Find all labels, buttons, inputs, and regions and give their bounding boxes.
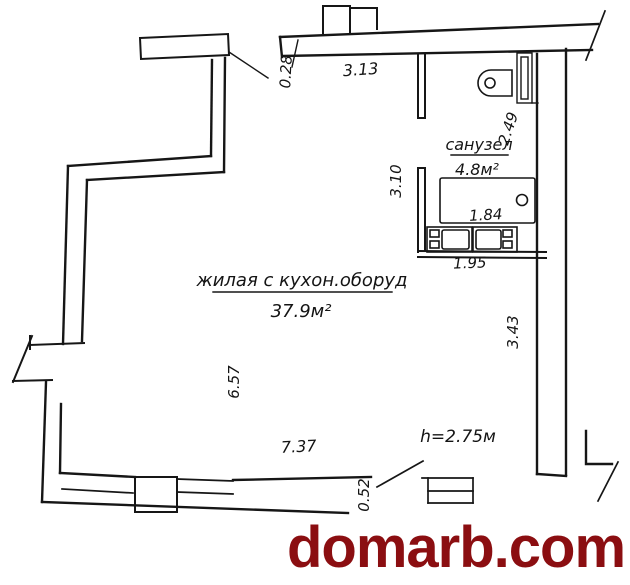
walls bbox=[42, 24, 598, 513]
dim-bathroom-right-wall: 2.49 bbox=[495, 110, 522, 147]
corner-wall-piece bbox=[586, 431, 612, 464]
room-bathroom-area: 4.8м² bbox=[455, 160, 500, 179]
ceiling-height-label: h=2.75м bbox=[420, 427, 496, 447]
dim-top-wall: 3.13 bbox=[342, 59, 379, 80]
stove-icons bbox=[427, 227, 517, 252]
room-living-name: жилая с кухон.оборуд bbox=[196, 270, 408, 291]
floor-plan-image: жилая с кухон.оборуд 37.9м² санузел 4.8м… bbox=[0, 0, 630, 585]
dim-bathtub-width: 1.84 bbox=[469, 205, 503, 225]
dim-top-offset: 0.28 bbox=[276, 55, 296, 89]
wall-break-marks bbox=[377, 11, 618, 501]
dim-kitchen-units-width: 1.95 bbox=[453, 253, 487, 272]
lintel-block bbox=[140, 34, 268, 78]
dim-left-wall: 6.57 bbox=[225, 365, 243, 399]
vent-shaft bbox=[323, 6, 377, 33]
dim-right-wall: 3.43 bbox=[504, 315, 522, 348]
wall-pilaster bbox=[13, 336, 84, 382]
dim-bottom-offset: 0.52 bbox=[355, 478, 373, 511]
floor-plan-drawing: жилая с кухон.оборуд 37.9м² санузел 4.8м… bbox=[0, 0, 630, 585]
toilet-icon bbox=[478, 70, 512, 96]
site-watermark: domarb.com bbox=[287, 515, 625, 580]
dim-bottom-wall: 7.37 bbox=[280, 436, 317, 457]
dim-bathroom-left-wall: 3.10 bbox=[387, 164, 405, 197]
door-threshold-block bbox=[422, 478, 473, 503]
room-living-area: 37.9м² bbox=[271, 301, 332, 322]
door-leaf bbox=[517, 53, 538, 103]
